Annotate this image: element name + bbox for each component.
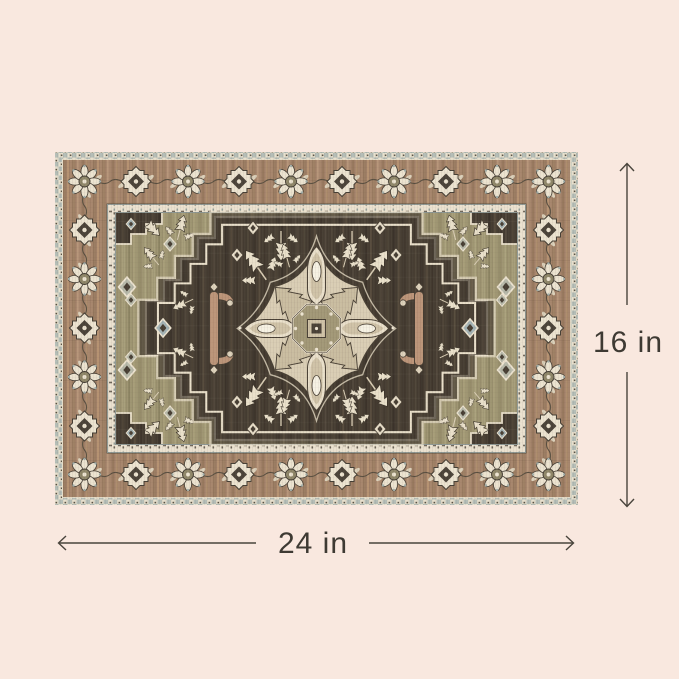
rug-weave-texture [55,152,578,505]
product-dimension-image: 16 in 24 in [0,0,679,679]
rug-image [55,152,578,505]
scene: 16 in 24 in [0,0,679,679]
width-label: 24 in [278,527,348,560]
height-label: 16 in [593,326,663,359]
